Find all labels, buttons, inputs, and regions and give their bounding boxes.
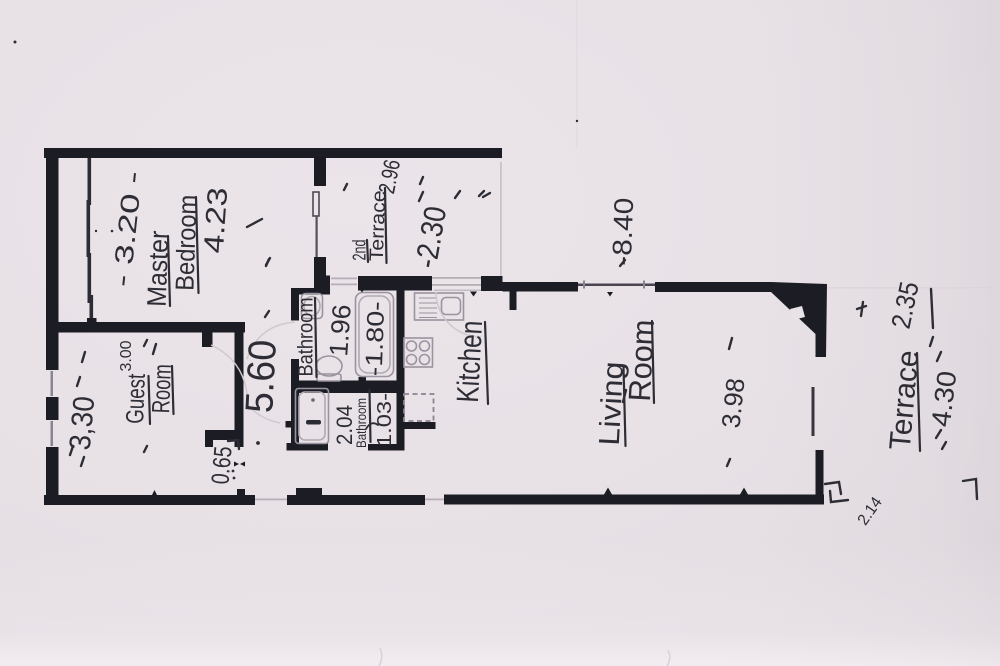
svg-text:4.23: 4.23 — [198, 186, 234, 254]
svg-text:Room: Room — [622, 319, 661, 403]
svg-text:1.96: 1.96 — [323, 303, 357, 357]
svg-text:3,30: 3,30 — [64, 395, 102, 452]
svg-text:1.03-: 1.03- — [374, 393, 396, 447]
svg-text:Bathroom: Bathroom — [354, 398, 369, 448]
svg-text:3.98: 3.98 — [716, 377, 751, 430]
svg-text:Kitchen: Kitchen — [450, 320, 489, 404]
svg-text:Guest: Guest — [121, 373, 151, 424]
svg-text:-8.40: -8.40 — [607, 197, 639, 266]
svg-text:-1.80-: -1.80- — [361, 301, 391, 377]
svg-text:5.60: 5.60 — [238, 339, 285, 414]
svg-text:Bathroom: Bathroom — [295, 298, 318, 377]
svg-text:3.00: 3.00 — [118, 340, 135, 371]
svg-text:0.65: 0.65 — [206, 445, 237, 485]
